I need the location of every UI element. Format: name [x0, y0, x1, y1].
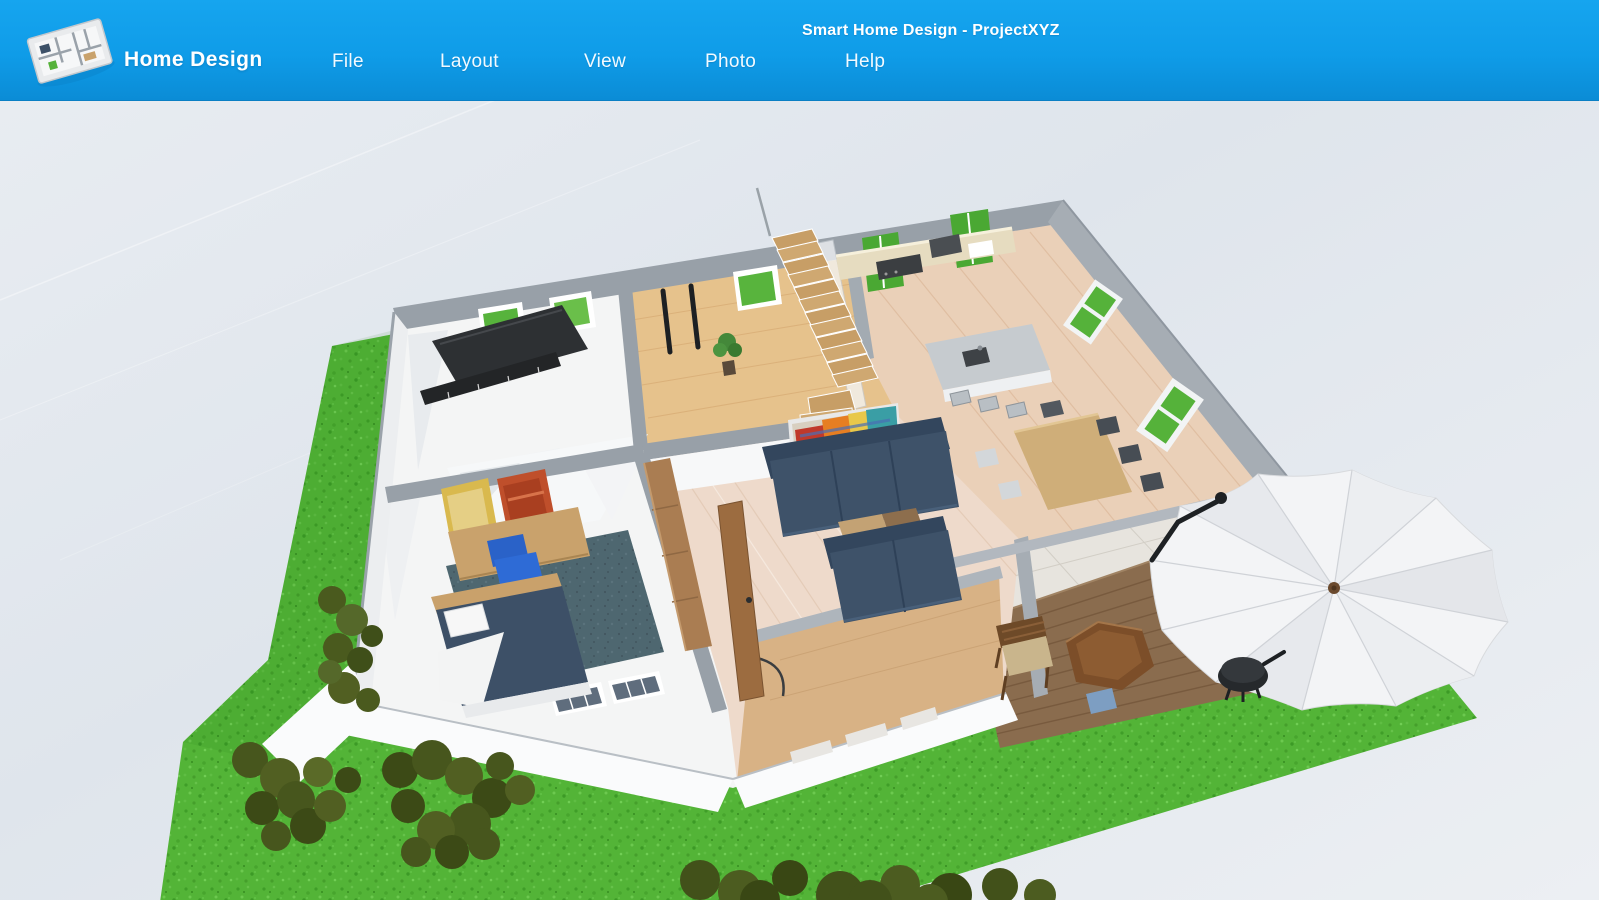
brand-menu-home-design[interactable]: Home Design: [124, 48, 263, 72]
menu-item-view[interactable]: View: [584, 51, 626, 73]
window-title: Smart Home Design - ProjectXYZ: [802, 22, 1060, 40]
app-window: Home Design File Layout View Photo Help …: [0, 0, 1599, 900]
logo-graphic: [22, 8, 118, 92]
menu-item-photo[interactable]: Photo: [705, 51, 756, 73]
floor-plan-logo[interactable]: [22, 8, 118, 92]
viewport-3d[interactable]: [0, 0, 1599, 900]
menu-item-file[interactable]: File: [332, 51, 364, 73]
app-header: Home Design File Layout View Photo Help …: [0, 0, 1599, 100]
menu-item-layout[interactable]: Layout: [440, 51, 499, 73]
menu-item-help[interactable]: Help: [845, 51, 885, 73]
scene-3d-floorplan: [0, 0, 1599, 900]
